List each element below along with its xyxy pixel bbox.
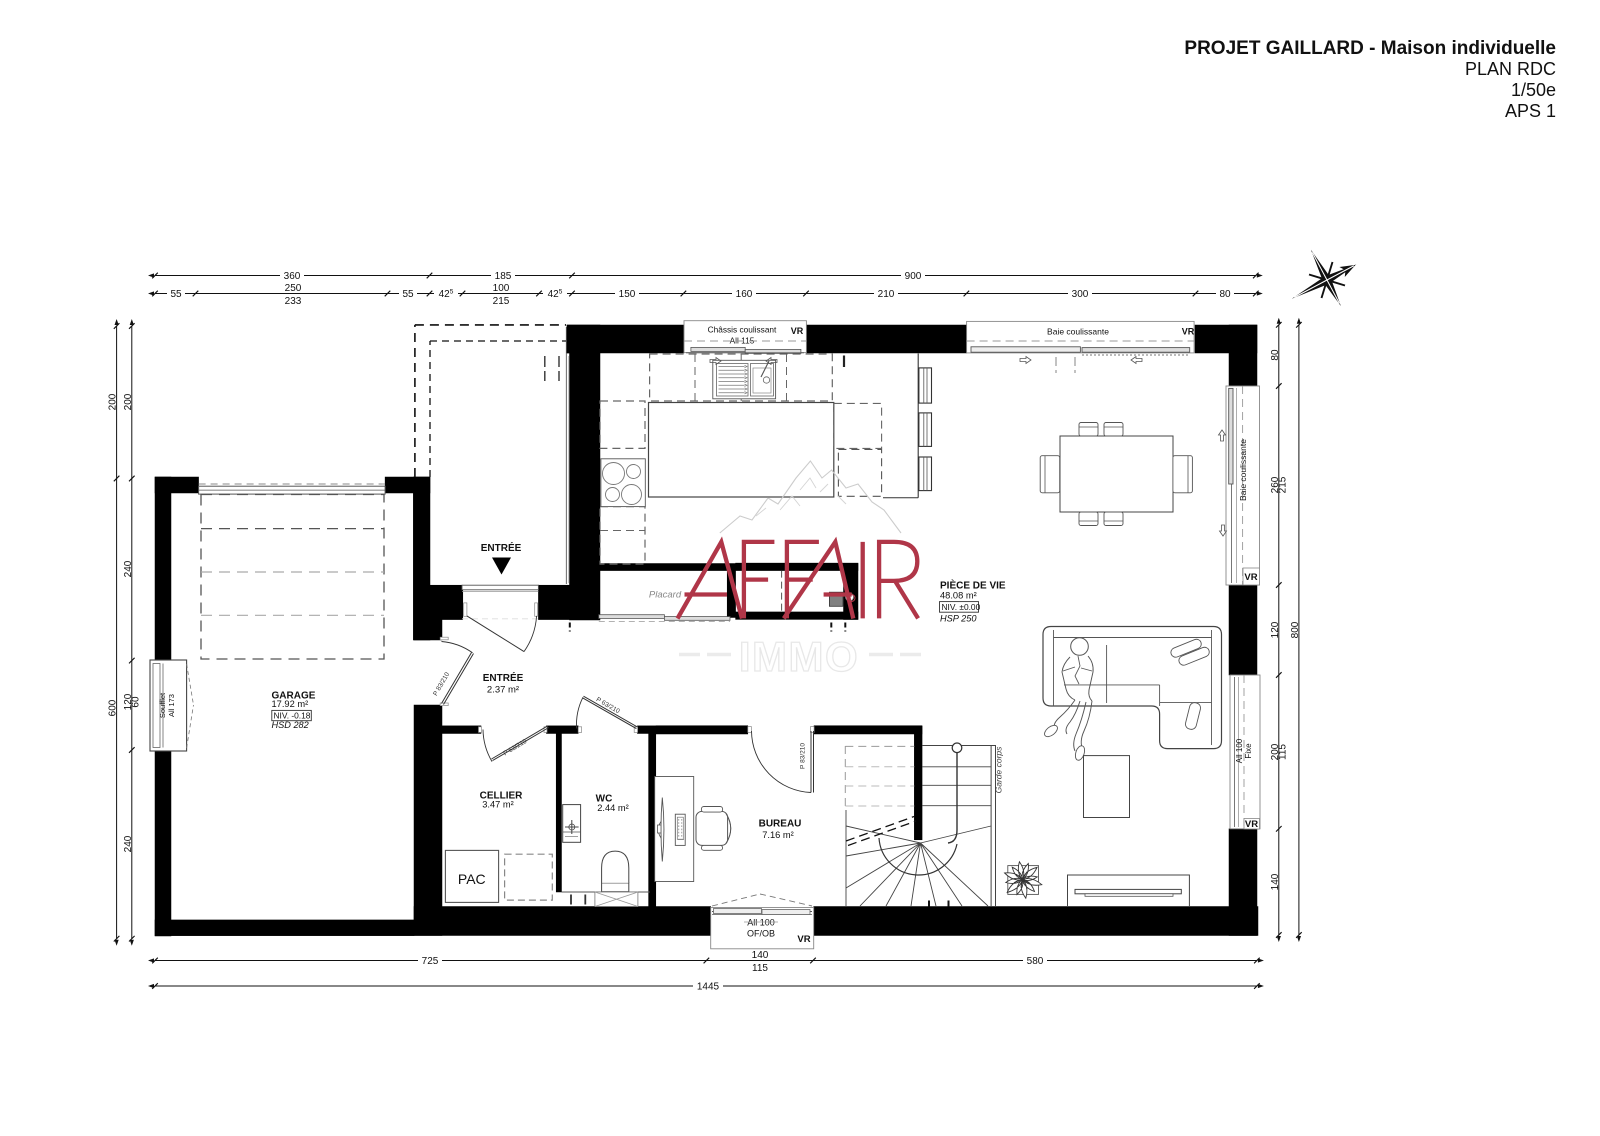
svg-text:140: 140: [1270, 873, 1281, 890]
svg-text:3.47 m²: 3.47 m²: [482, 800, 514, 810]
svg-text:233: 233: [285, 296, 302, 307]
svg-text:PLAN RDC: PLAN RDC: [1465, 59, 1556, 79]
svg-text:VR: VR: [1182, 327, 1195, 337]
svg-text:360: 360: [284, 271, 301, 282]
svg-text:7.16 m²: 7.16 m²: [762, 830, 794, 840]
svg-text:Placard: Placard: [649, 590, 682, 601]
svg-text:P 83/210: P 83/210: [800, 743, 807, 769]
svg-text:HSP 250: HSP 250: [940, 613, 977, 623]
svg-text:PAC: PAC: [458, 871, 486, 887]
svg-text:140: 140: [752, 950, 769, 961]
svg-text:725: 725: [422, 956, 439, 967]
svg-text:900: 900: [905, 271, 922, 282]
svg-text:2.44 m²: 2.44 m²: [597, 803, 629, 813]
svg-text:All 100: All 100: [747, 918, 775, 928]
svg-text:VR: VR: [791, 326, 804, 336]
svg-text:800: 800: [1290, 621, 1301, 638]
svg-text:80: 80: [1219, 289, 1231, 300]
svg-text:HSD 282: HSD 282: [272, 720, 309, 730]
svg-text:48.08 m²: 48.08 m²: [940, 591, 977, 601]
svg-text:240: 240: [123, 560, 134, 577]
svg-text:All 115: All 115: [730, 336, 755, 346]
svg-text:115: 115: [752, 963, 768, 974]
svg-text:55: 55: [170, 289, 182, 300]
svg-text:200: 200: [123, 393, 134, 410]
svg-text:240: 240: [123, 835, 134, 852]
svg-text:100: 100: [493, 283, 510, 294]
svg-text:All 100: All 100: [1235, 738, 1244, 763]
svg-text:200: 200: [108, 393, 119, 410]
svg-text:BUREAU: BUREAU: [759, 819, 802, 830]
svg-text:PROJET GAILLARD - Maison indiv: PROJET GAILLARD - Maison individuelle: [1184, 38, 1556, 59]
svg-text:Châssis coulissant: Châssis coulissant: [708, 325, 777, 335]
svg-text:Garde corps: Garde corps: [994, 746, 1004, 794]
svg-text:Baie coulissante: Baie coulissante: [1238, 439, 1248, 501]
svg-text:120: 120: [1270, 621, 1281, 638]
svg-text:ENTRÉE: ENTRÉE: [483, 671, 524, 684]
svg-text:ENTRÉE: ENTRÉE: [481, 541, 522, 554]
svg-text:All 173: All 173: [167, 694, 176, 717]
svg-text:PIÈCE DE VIE: PIÈCE DE VIE: [940, 579, 1006, 592]
svg-text:Soufflet: Soufflet: [158, 692, 167, 718]
svg-text:300: 300: [1072, 289, 1089, 300]
svg-text:OF/OB: OF/OB: [747, 929, 775, 939]
svg-text:210: 210: [878, 289, 895, 300]
svg-text:VR: VR: [797, 934, 810, 945]
svg-text:VR: VR: [1245, 819, 1258, 830]
svg-text:1445: 1445: [697, 981, 720, 992]
svg-text:Fixe: Fixe: [1244, 743, 1253, 759]
svg-text:115: 115: [1278, 744, 1289, 760]
svg-text:160: 160: [736, 289, 753, 300]
svg-text:150: 150: [619, 289, 636, 300]
svg-text:215: 215: [1278, 476, 1289, 493]
svg-text:580: 580: [1027, 956, 1044, 967]
svg-text:VR: VR: [1244, 572, 1257, 583]
svg-text:215: 215: [493, 296, 510, 307]
svg-text:55: 55: [402, 289, 414, 300]
svg-text:60: 60: [131, 696, 142, 708]
svg-text:600: 600: [108, 699, 119, 716]
svg-text:IMMO: IMMO: [739, 633, 859, 680]
svg-text:250: 250: [285, 283, 302, 294]
svg-text:Baie coulissante: Baie coulissante: [1047, 327, 1109, 337]
svg-text:185: 185: [495, 271, 512, 282]
svg-text:80: 80: [1270, 349, 1281, 361]
svg-text:2.37 m²: 2.37 m²: [487, 685, 519, 696]
svg-text:APS 1: APS 1: [1505, 101, 1556, 121]
svg-text:NIV. ±0.00: NIV. ±0.00: [942, 602, 981, 612]
svg-text:1/50e: 1/50e: [1511, 80, 1556, 100]
svg-text:17.92 m²: 17.92 m²: [272, 699, 309, 709]
